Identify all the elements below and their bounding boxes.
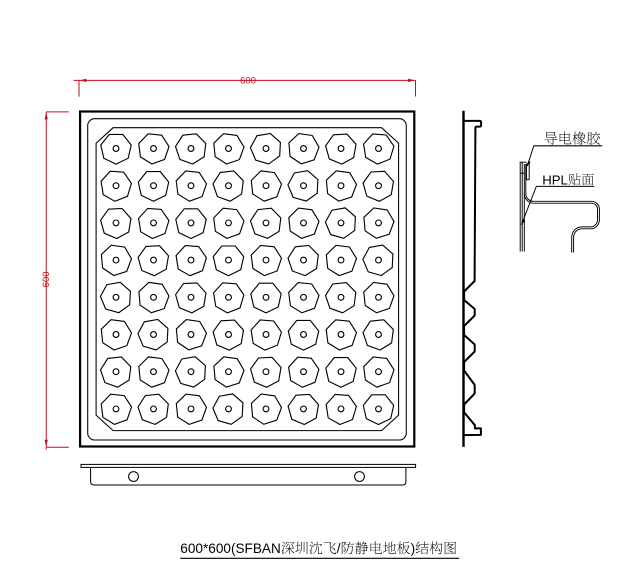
svg-text:600*600(SFBAN: 600*600(SFBAN xyxy=(180,541,280,556)
svg-text:600: 600 xyxy=(41,271,52,287)
svg-text:): ) xyxy=(411,541,416,556)
svg-text:/: / xyxy=(337,541,341,556)
svg-text:600: 600 xyxy=(240,75,256,86)
svg-text:HPL: HPL xyxy=(542,172,568,187)
